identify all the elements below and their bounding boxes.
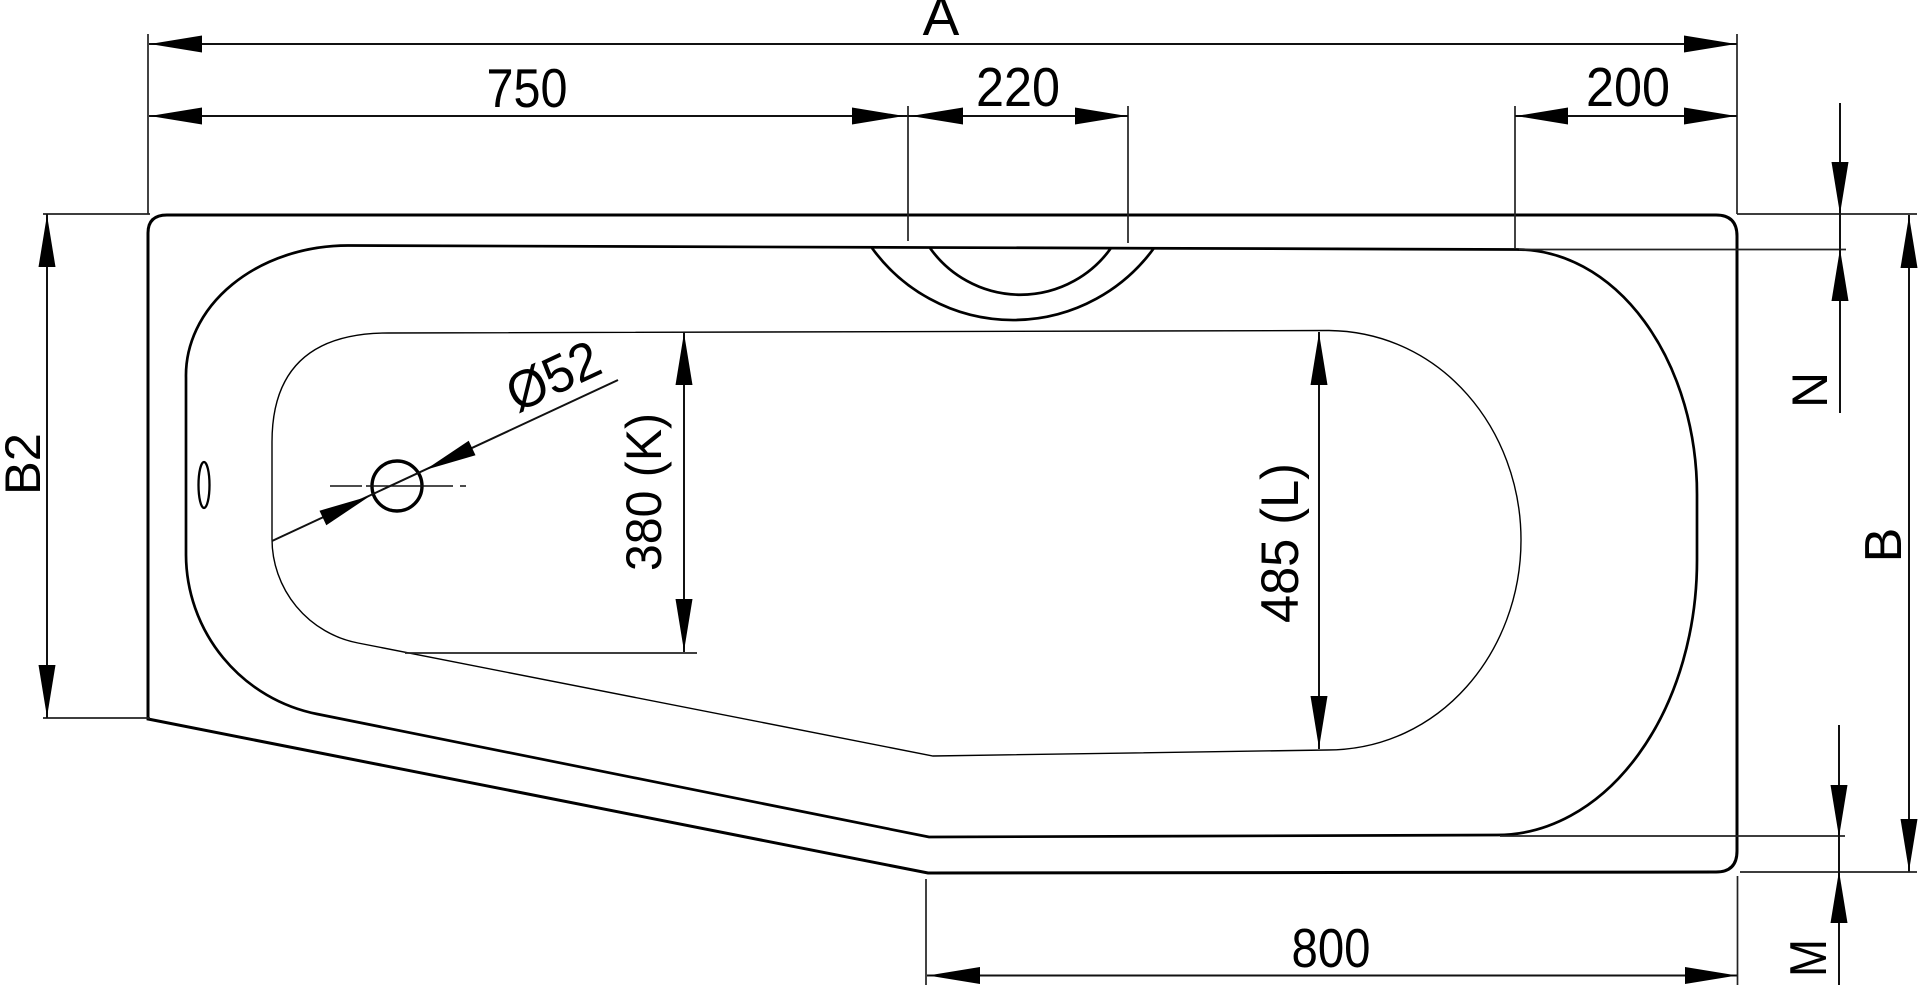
svg-text:B: B bbox=[1855, 528, 1913, 563]
svg-text:750: 750 bbox=[487, 57, 568, 119]
svg-text:N: N bbox=[1782, 372, 1838, 408]
svg-text:220: 220 bbox=[976, 56, 1060, 118]
svg-text:200: 200 bbox=[1586, 56, 1670, 118]
svg-text:A: A bbox=[923, 0, 960, 47]
svg-text:800: 800 bbox=[1292, 917, 1371, 979]
svg-text:M: M bbox=[1780, 939, 1838, 977]
svg-text:B2: B2 bbox=[0, 433, 51, 495]
svg-text:380 (K): 380 (K) bbox=[616, 413, 672, 571]
svg-text:485 (L): 485 (L) bbox=[1251, 463, 1310, 623]
